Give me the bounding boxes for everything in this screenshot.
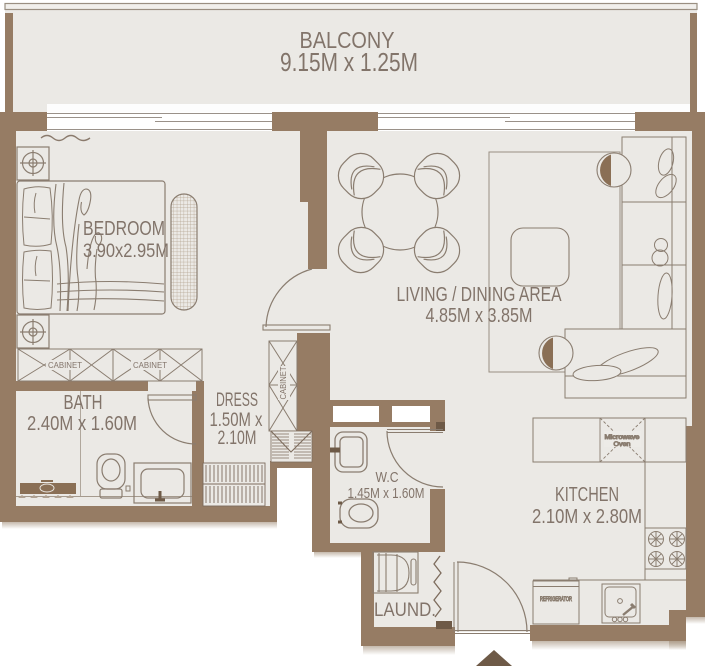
svg-text:LAUND.: LAUND.: [374, 600, 436, 621]
svg-text:2.10M x 2.80M: 2.10M x 2.80M: [532, 506, 642, 528]
svg-text:3.90x2.95M: 3.90x2.95M: [83, 240, 169, 262]
svg-text:Microwave: Microwave: [605, 435, 641, 441]
svg-text:BEDROOM: BEDROOM: [83, 218, 165, 240]
svg-text:2.10M: 2.10M: [218, 428, 257, 449]
svg-text:LIVING / DINING AREA: LIVING / DINING AREA: [397, 283, 562, 306]
svg-text:W.C: W.C: [376, 469, 399, 486]
svg-text:DRESS: DRESS: [216, 390, 258, 411]
svg-text:2.40M x 1.60M: 2.40M x 1.60M: [27, 413, 137, 435]
svg-text:REFRIGERATOR: REFRIGERATOR: [540, 596, 572, 603]
svg-text:Oven: Oven: [614, 442, 631, 448]
svg-text:BATH: BATH: [64, 392, 103, 414]
svg-text:CABINET: CABINET: [279, 366, 288, 399]
svg-text:9.15M x 1.25M: 9.15M x 1.25M: [280, 49, 418, 77]
svg-text:4.85M x 3.85M: 4.85M x 3.85M: [426, 305, 533, 327]
svg-text:CABINET: CABINET: [133, 361, 167, 370]
svg-text:KITCHEN: KITCHEN: [555, 483, 619, 506]
svg-text:1.45M x 1.60M: 1.45M x 1.60M: [348, 485, 425, 502]
svg-text:CABINET: CABINET: [48, 361, 82, 370]
